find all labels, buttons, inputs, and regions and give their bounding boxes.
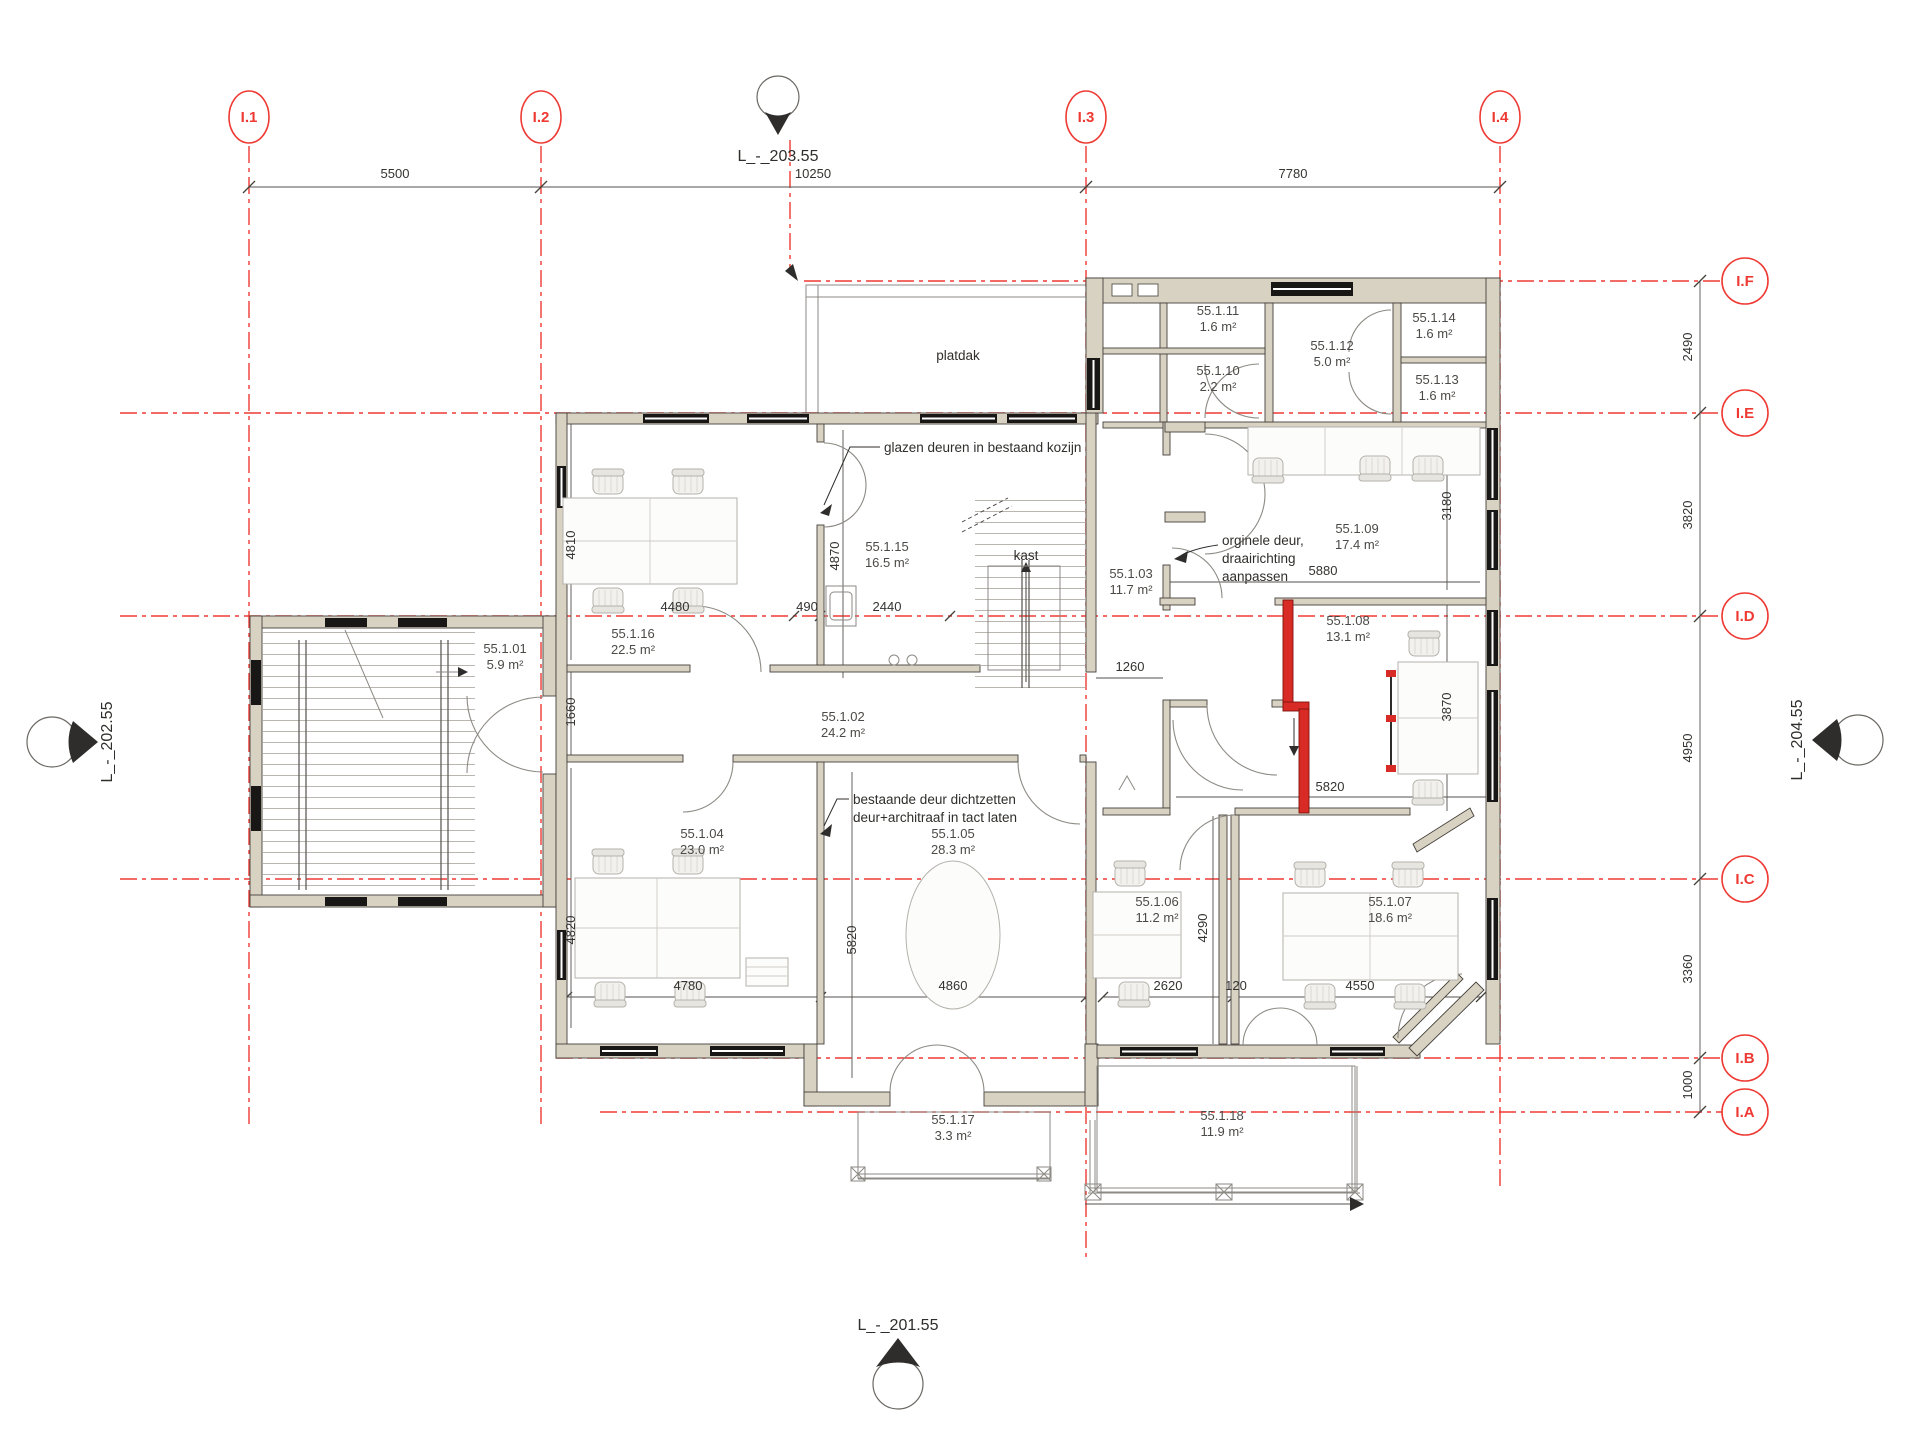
room-area: 3.3 m²: [935, 1128, 973, 1143]
dim-text: 4810: [563, 531, 578, 560]
main-staircase: [975, 492, 1086, 688]
room-area: 11.7 m²: [1109, 582, 1153, 597]
platdak-label: platdak: [936, 348, 980, 363]
level-label-top: L_-_203.55: [738, 148, 819, 165]
kast-label: kast: [1014, 548, 1039, 563]
room-label: 55.1.04: [680, 826, 723, 841]
room-area: 22.5 m²: [611, 642, 656, 657]
room-label: 55.1.13: [1415, 372, 1458, 387]
dim-text: 5500: [381, 166, 410, 181]
stove-burner: [907, 655, 917, 665]
grid-label: I.D: [1735, 608, 1754, 625]
dim-text: 2440: [873, 599, 902, 614]
level-label-right: L_-_204.55: [1789, 699, 1806, 780]
room-label: 55.1.07: [1368, 894, 1411, 909]
dim-text: 4820: [563, 916, 578, 945]
room-area: 5.0 m²: [1314, 354, 1352, 369]
annotation-orginele-3: aanpassen: [1222, 569, 1288, 584]
room-label: 55.1.05: [931, 826, 974, 841]
dim-text: 3870: [1439, 693, 1454, 722]
room-area: 1.6 m²: [1419, 388, 1457, 403]
dim-text: 4290: [1195, 914, 1210, 943]
annotation-glazen: glazen deuren in bestaand kozijn: [884, 440, 1081, 455]
room-area: 11.9 m²: [1200, 1124, 1244, 1139]
grid-label: I.2: [533, 109, 550, 126]
dim-text: 4860: [939, 978, 968, 993]
room-area: 18.6 m²: [1368, 910, 1413, 925]
floor-plan-page: I.1 I.2 I.3 I.4 I.F I.E I.D I.C I.B I.A …: [0, 0, 1920, 1440]
room-label: 55.1.06: [1135, 894, 1178, 909]
level-label-left: L_-_202.55: [99, 701, 116, 782]
dim-text: 120: [1225, 978, 1247, 993]
stove-burner: [889, 655, 899, 665]
room-area: 11.2 m²: [1135, 910, 1179, 925]
dim-text: 5820: [1316, 779, 1345, 794]
grid-label: I.3: [1078, 109, 1095, 126]
dim-text: 4550: [1346, 978, 1375, 993]
floor-plan-drawing: I.1 I.2 I.3 I.4 I.F I.E I.D I.C I.B I.A …: [0, 0, 1920, 1440]
dim-text: 3180: [1439, 492, 1454, 521]
grid-label: I.A: [1735, 1104, 1754, 1121]
room-label: 55.1.10: [1196, 363, 1239, 378]
dim-text: 3360: [1680, 955, 1695, 984]
annotation-bestaande-2: deur+architraaf in tact laten: [853, 810, 1017, 825]
dim-text: 1000: [1680, 1071, 1695, 1100]
dim-text: 3820: [1680, 501, 1695, 530]
room-area: 5.9 m²: [487, 657, 525, 672]
dim-text: 4480: [661, 599, 690, 614]
dim-text: 4870: [827, 542, 842, 571]
room-label: 55.1.12: [1310, 338, 1353, 353]
room-label: 55.1.02: [821, 709, 864, 724]
level-label-bottom: L_-_201.55: [858, 1317, 939, 1334]
room-label: 55.1.03: [1109, 566, 1152, 581]
room-label: 55.1.17: [931, 1112, 974, 1127]
dim-text: 2490: [1680, 333, 1695, 362]
dim-text: 1260: [1116, 659, 1145, 674]
terraces-layer: [851, 1066, 1364, 1211]
dim-text: 4950: [1680, 734, 1695, 763]
room-label: 55.1.16: [611, 626, 654, 641]
annex-staircase: [262, 628, 475, 895]
annotation-bestaande-1: bestaande deur dichtzetten: [853, 792, 1016, 807]
level-marker-bottom: [873, 1359, 923, 1409]
room-area: 28.3 m²: [931, 842, 976, 857]
room-label: 55.1.08: [1326, 613, 1369, 628]
room-label: 55.1.15: [865, 539, 908, 554]
room-label: 55.1.18: [1200, 1108, 1243, 1123]
room-label: 55.1.14: [1412, 310, 1455, 325]
dim-text: 4780: [674, 978, 703, 993]
room-label: 55.1.09: [1335, 521, 1378, 536]
dim-text: 5820: [844, 926, 859, 955]
room-label: 55.1.11: [1197, 303, 1239, 318]
annotation-orginele-2: draairichting: [1222, 551, 1296, 566]
grid-label: I.4: [1492, 109, 1509, 126]
room-area: 1.6 m²: [1200, 319, 1238, 334]
room-area: 13.1 m²: [1326, 629, 1371, 644]
room-area: 23.0 m²: [680, 842, 725, 857]
room-area: 16.5 m²: [865, 555, 910, 570]
grid-label: I.1: [241, 109, 258, 126]
new-wall-highlight: [1283, 600, 1293, 708]
annotation-orginele-1: orginele deur,: [1222, 533, 1304, 548]
grid-label: I.B: [1735, 1050, 1754, 1067]
dim-text: 490: [796, 599, 818, 614]
level-marker-top: [757, 76, 799, 118]
room-area: 1.6 m²: [1416, 326, 1454, 341]
room-area: 2.2 m²: [1200, 379, 1238, 394]
dim-text: 5880: [1309, 563, 1338, 578]
grid-label: I.E: [1736, 405, 1754, 422]
dim-text: 1660: [563, 698, 578, 727]
dim-text: 10250: [795, 166, 831, 181]
grid-label: I.F: [1736, 273, 1754, 290]
dim-text: 2620: [1154, 978, 1183, 993]
room-label: 55.1.01: [483, 641, 526, 656]
grid-label: I.C: [1735, 871, 1754, 888]
room-area: 17.4 m²: [1335, 537, 1380, 552]
room-area: 24.2 m²: [821, 725, 866, 740]
dim-text: 7780: [1279, 166, 1308, 181]
